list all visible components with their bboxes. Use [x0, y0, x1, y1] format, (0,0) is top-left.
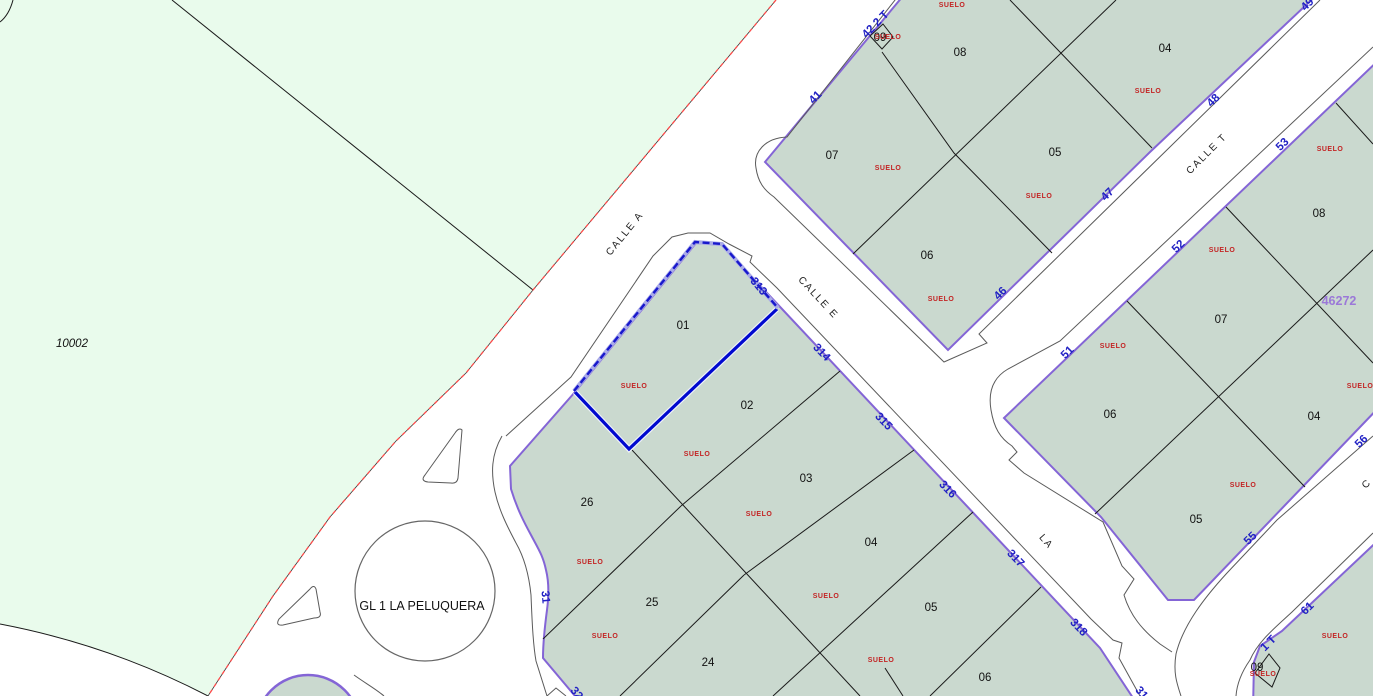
svg-text:SUELO: SUELO — [577, 559, 604, 566]
svg-text:SUELO: SUELO — [1230, 482, 1257, 489]
svg-text:SUELO: SUELO — [813, 593, 840, 600]
svg-text:SUELO: SUELO — [1317, 146, 1344, 153]
svg-text:SUELO: SUELO — [928, 296, 955, 303]
svg-text:SUELO: SUELO — [939, 2, 966, 9]
svg-text:25: 25 — [646, 597, 659, 609]
svg-text:05: 05 — [1049, 147, 1062, 159]
svg-text:SUELO: SUELO — [1026, 193, 1053, 200]
svg-text:04: 04 — [1308, 411, 1321, 423]
svg-text:SUELO: SUELO — [684, 451, 711, 458]
svg-text:SUELO: SUELO — [1322, 633, 1349, 640]
svg-text:06: 06 — [921, 250, 934, 262]
svg-text:SUELO: SUELO — [1250, 671, 1277, 678]
svg-text:08: 08 — [1313, 208, 1326, 220]
svg-text:SUELO: SUELO — [1347, 383, 1373, 390]
svg-text:07: 07 — [1215, 314, 1228, 326]
svg-text:04: 04 — [1159, 43, 1172, 55]
svg-text:SUELO: SUELO — [1100, 343, 1127, 350]
svg-text:07: 07 — [826, 150, 839, 162]
svg-text:SUELO: SUELO — [592, 633, 619, 640]
svg-text:SUELO: SUELO — [868, 657, 895, 664]
svg-text:02: 02 — [741, 400, 754, 412]
svg-text:GL 1 LA PELUQUERA: GL 1 LA PELUQUERA — [359, 599, 485, 613]
svg-text:01: 01 — [677, 320, 690, 332]
svg-text:05: 05 — [1190, 514, 1203, 526]
svg-text:04: 04 — [865, 537, 878, 549]
svg-text:SUELO: SUELO — [746, 511, 773, 518]
svg-text:24: 24 — [702, 657, 715, 669]
svg-text:46272: 46272 — [1322, 294, 1357, 308]
svg-text:SUELO: SUELO — [875, 34, 902, 41]
svg-text:03: 03 — [800, 473, 813, 485]
svg-text:31: 31 — [538, 590, 551, 604]
svg-text:05: 05 — [925, 602, 938, 614]
svg-text:08: 08 — [954, 47, 967, 59]
svg-text:SUELO: SUELO — [621, 383, 648, 390]
svg-text:SUELO: SUELO — [875, 165, 902, 172]
svg-text:SUELO: SUELO — [1135, 88, 1162, 95]
svg-text:06: 06 — [1104, 409, 1117, 421]
svg-text:10002: 10002 — [56, 338, 89, 350]
svg-text:06: 06 — [979, 672, 992, 684]
svg-text:SUELO: SUELO — [1209, 247, 1236, 254]
svg-text:26: 26 — [581, 497, 594, 509]
